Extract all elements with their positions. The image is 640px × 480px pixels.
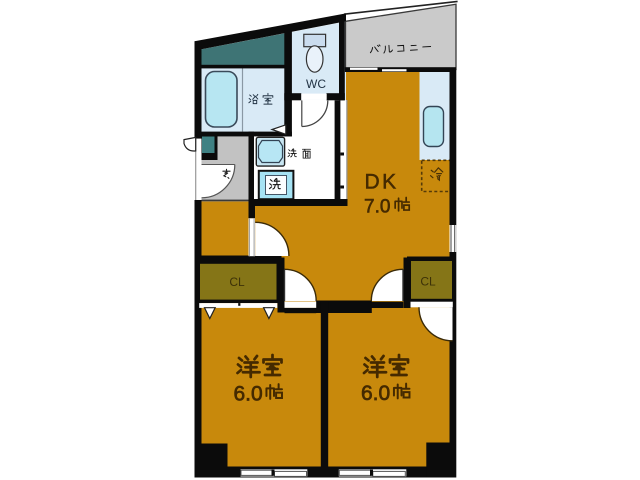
svg-text:DK: DK: [365, 171, 399, 194]
svg-text:CL: CL: [420, 275, 436, 289]
svg-text:7.0: 7.0: [364, 197, 390, 218]
svg-text:CL: CL: [229, 275, 245, 289]
svg-text:WC: WC: [306, 77, 326, 91]
svg-text:6.0: 6.0: [234, 383, 263, 406]
svg-text:6.0: 6.0: [361, 382, 390, 405]
